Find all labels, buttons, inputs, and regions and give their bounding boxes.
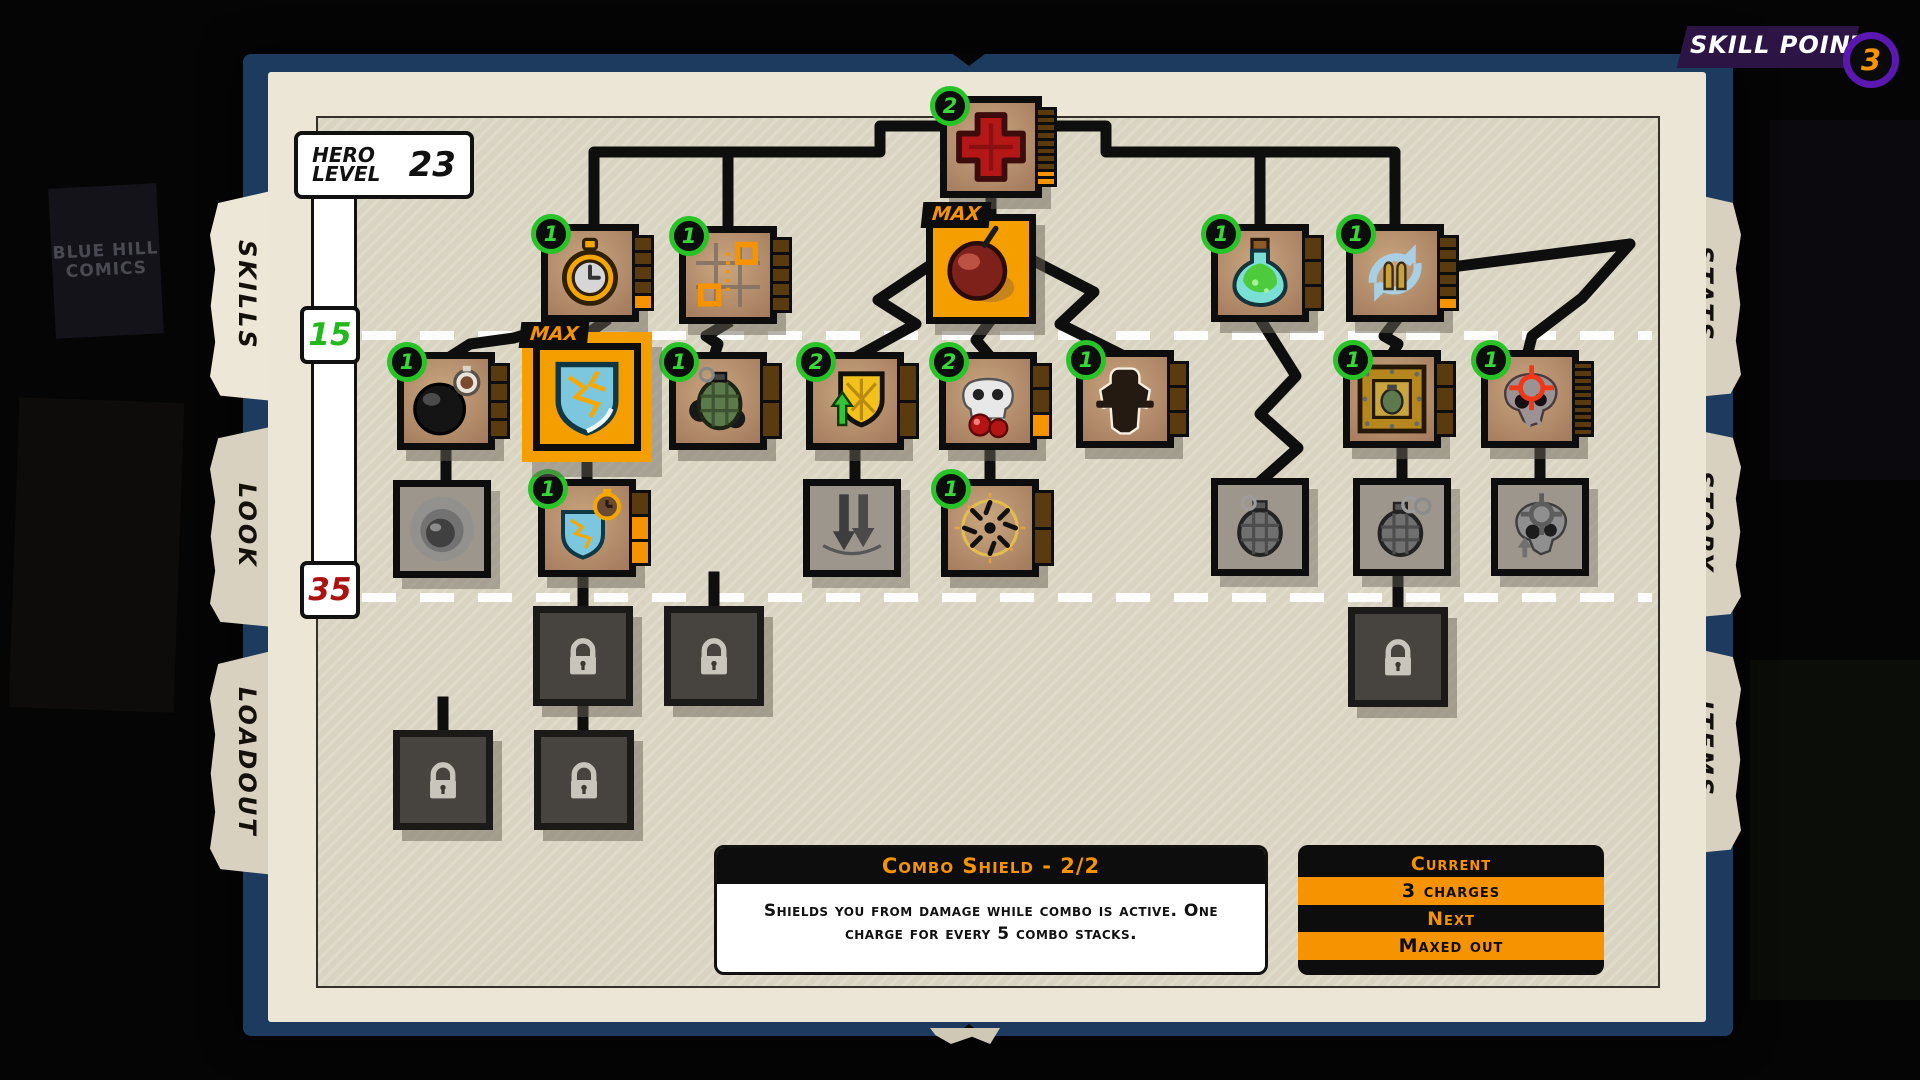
skill-node-skull-mark[interactable]: [1491, 478, 1589, 576]
padlock-icon: [416, 753, 470, 807]
skill-node-locked-4[interactable]: [393, 730, 493, 830]
skill-node-ground-slam[interactable]: [803, 479, 901, 577]
skill-cost-badge: 1: [1336, 214, 1376, 254]
skill-level-pip: [773, 284, 789, 296]
skill-node-locked-1[interactable]: [533, 606, 633, 706]
skill-cost-badge: 1: [1201, 214, 1241, 254]
skill-level-pip: [1440, 299, 1456, 308]
padlock-icon: [1371, 630, 1425, 684]
skill-level-pip: [1575, 364, 1591, 368]
upgrade-next-label: Next: [1298, 905, 1604, 932]
skill-level-pip: [1033, 415, 1049, 436]
skill-level-pip: [763, 366, 779, 400]
skill-level-pip: [1440, 275, 1456, 284]
skill-level-pips: [1030, 363, 1052, 439]
skill-level-pip: [1440, 250, 1456, 259]
skill-level-pip: [1440, 262, 1456, 271]
skill-cost-badge: 1: [1471, 340, 1511, 380]
skill-node-crate-grenade[interactable]: 1: [1343, 350, 1441, 448]
skill-level-pip: [1038, 133, 1054, 138]
skill-cost-badge: 2: [929, 342, 969, 382]
skill-node-locked-5[interactable]: [534, 730, 634, 830]
skill-level-pip: [632, 542, 648, 563]
skill-level-pip: [773, 240, 789, 252]
skill-level-pip: [1305, 287, 1321, 308]
skill-node-health-cross[interactable]: 2: [940, 96, 1042, 198]
orb-icon: [402, 489, 482, 569]
skill-level-pip: [1033, 390, 1049, 411]
skill-level-pip: [1035, 530, 1051, 564]
skill-level-pip: [635, 253, 651, 265]
skill-level-pip: [1038, 156, 1054, 161]
skill-level-pip: [1575, 371, 1591, 375]
level-rail: [311, 168, 357, 604]
skill-tooltip: Combo Shield - 2/2 Shields you from dama…: [714, 845, 1268, 975]
skill-level-pips: [1035, 107, 1057, 187]
skill-node-shield-upgrade[interactable]: 2: [806, 352, 904, 450]
skill-level-pip: [1170, 413, 1186, 434]
skill-cost-badge: 1: [1066, 340, 1106, 380]
skill-node-combo-nova[interactable]: 1: [941, 479, 1039, 577]
skill-level-pips: [897, 363, 919, 439]
skill-level-pips: [1434, 361, 1456, 437]
bomb-icon: [935, 223, 1027, 315]
skill-level-pip: [1440, 287, 1456, 296]
skill-node-skull-target[interactable]: 1: [1481, 350, 1579, 448]
skill-level-pip: [900, 403, 916, 437]
skill-node-stopwatch[interactable]: 1: [541, 224, 639, 322]
skill-level-pip: [491, 384, 507, 399]
skill-level-pip: [632, 517, 648, 538]
upgrade-current-value: 3 charges: [1298, 877, 1604, 905]
skill-level-pip: [773, 255, 789, 267]
skill-level-pip: [1305, 238, 1321, 259]
skill-node-combo-shield[interactable]: MAX: [533, 343, 641, 451]
skill-level-pip: [773, 298, 789, 310]
skill-cost-badge: 1: [669, 216, 709, 256]
skill-level-pip: [900, 366, 916, 400]
skill-level-pips: [488, 363, 510, 439]
slam-arrows-icon: [812, 488, 892, 568]
skill-level-pip: [635, 267, 651, 279]
upgrade-current-label: Current: [1298, 850, 1604, 877]
skill-node-grenade[interactable]: 1: [669, 352, 767, 450]
skill-cost-badge: 1: [528, 469, 568, 509]
skill-cost-badge: 2: [796, 342, 836, 382]
skill-level-pip: [1035, 493, 1051, 527]
skill-cost-badge: 1: [659, 342, 699, 382]
skill-level-pip: [1038, 125, 1054, 130]
skill-level-pip: [491, 403, 507, 418]
skill-node-locked-3[interactable]: [1348, 607, 1448, 707]
skill-node-cherry-bomb[interactable]: MAX: [926, 214, 1036, 324]
skill-level-pip: [1437, 388, 1453, 409]
hero-level-box: HEROLEVEL 23: [294, 131, 474, 199]
skill-level-pip: [491, 366, 507, 381]
upgrade-next-value: Maxed out: [1298, 932, 1604, 960]
skill-level-pip: [491, 421, 507, 436]
skill-node-room-teleport[interactable]: 1: [679, 226, 777, 324]
skill-level-pips: [632, 235, 654, 311]
level-marker-15: 15: [300, 306, 360, 364]
shield-combo-icon: [542, 352, 632, 442]
skill-level-pip: [1038, 118, 1054, 123]
skill-level-pip: [1305, 262, 1321, 283]
skill-node-shield-duration[interactable]: 1: [538, 479, 636, 577]
skill-level-pips: [1032, 490, 1054, 566]
skill-level-pip: [1437, 364, 1453, 385]
skill-node-frag-grenade[interactable]: [1211, 478, 1309, 576]
upgrade-panel: Current 3 charges Next Maxed out: [1298, 845, 1604, 975]
skill-level-pip: [1170, 364, 1186, 385]
max-level-banner: MAX: [921, 202, 992, 228]
skill-level-pip: [1038, 141, 1054, 146]
skill-node-locked-2[interactable]: [664, 606, 764, 706]
skill-level-pips: [1572, 361, 1594, 437]
skill-level-pips: [770, 237, 792, 313]
padlock-icon: [556, 629, 610, 683]
padlock-icon: [687, 629, 741, 683]
skill-level-pip: [763, 403, 779, 437]
skill-level-pips: [1167, 361, 1189, 437]
level-marker-35: 35: [300, 561, 360, 619]
skull-gray-icon: [1500, 487, 1580, 567]
skill-level-pip: [1575, 430, 1591, 434]
skill-node-potion[interactable]: 1: [1211, 224, 1309, 322]
skill-level-pip: [1038, 149, 1054, 154]
skill-level-pip: [635, 282, 651, 294]
skill-level-pip: [1038, 164, 1054, 169]
skill-cost-badge: 1: [387, 342, 427, 382]
skill-level-pip: [773, 269, 789, 281]
skill-node-double-grenade[interactable]: [1353, 478, 1451, 576]
skill-level-pip: [1440, 238, 1456, 247]
skill-node-time-bomb[interactable]: 1: [397, 352, 495, 450]
skill-level-pip: [1038, 179, 1054, 184]
skill-level-pip: [1575, 408, 1591, 412]
skill-node-hero-rage[interactable]: 1: [1076, 350, 1174, 448]
skill-node-ghost-orb[interactable]: [393, 480, 491, 578]
tooltip-title: Combo Shield - 2/2: [717, 848, 1265, 884]
skill-cost-badge: 1: [531, 214, 571, 254]
skill-level-pip: [1575, 422, 1591, 426]
skill-level-pips: [629, 490, 651, 566]
skill-cost-badge: 1: [931, 469, 971, 509]
skill-level-pip: [632, 493, 648, 514]
skill-level-pip: [1437, 413, 1453, 434]
skill-level-pip: [1575, 415, 1591, 419]
skill-level-pips: [1437, 235, 1459, 311]
skill-level-pip: [635, 238, 651, 250]
skill-level-pip: [1575, 386, 1591, 390]
skill-tree-screen: BLUE HILL COMICS SKILL POINTS 3 SKILLS L…: [0, 0, 1920, 1080]
skill-level-pip: [1033, 366, 1049, 387]
skill-level-pip: [1038, 172, 1054, 177]
skill-level-pip: [1575, 379, 1591, 383]
skill-node-skull-cherries[interactable]: 2: [939, 352, 1037, 450]
tooltip-description: Shields you from damage while combo is a…: [717, 884, 1265, 946]
skill-level-pip: [1170, 388, 1186, 409]
skill-node-ammo-reload[interactable]: 1: [1346, 224, 1444, 322]
hero-level-value: 23: [409, 145, 456, 185]
skill-level-pip: [1575, 400, 1591, 404]
hero-level-label: HEROLEVEL: [312, 146, 380, 184]
skill-cost-badge: 2: [930, 86, 970, 126]
skill-cost-badge: 1: [1333, 340, 1373, 380]
skill-level-pips: [760, 363, 782, 439]
skill-level-pip: [1575, 393, 1591, 397]
max-level-banner: MAX: [519, 322, 590, 348]
grenade-double-icon: [1362, 487, 1442, 567]
padlock-icon: [557, 753, 611, 807]
skill-level-pip: [1038, 110, 1054, 115]
skill-level-pips: [1302, 235, 1324, 311]
skill-level-pip: [635, 296, 651, 308]
grenade-frag-icon: [1220, 487, 1300, 567]
